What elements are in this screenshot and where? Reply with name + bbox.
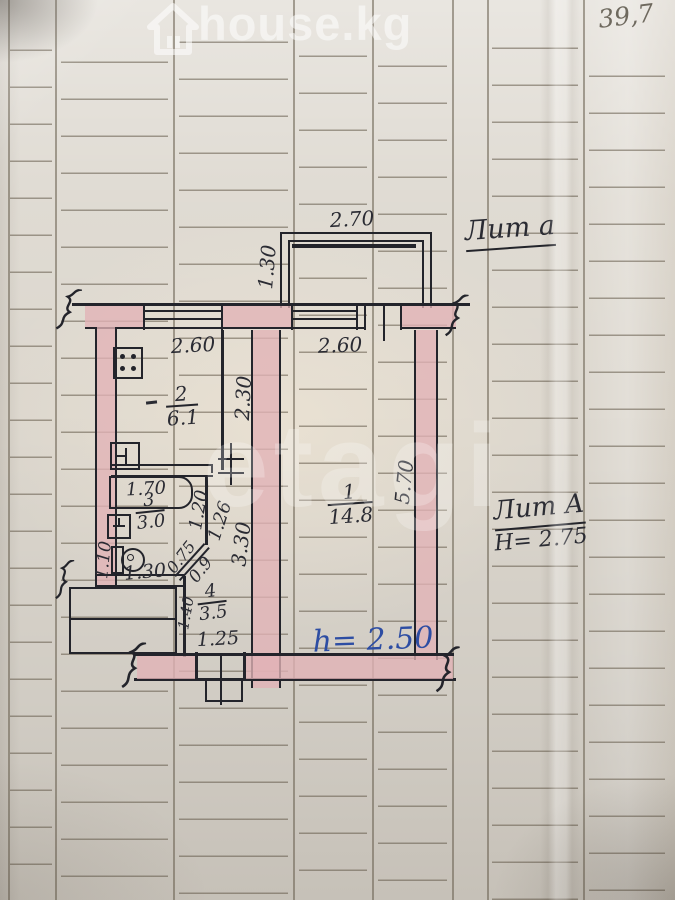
kitchen-door-jamb: [211, 464, 213, 473]
stove-burner: [120, 354, 125, 359]
window-pane-line: [143, 310, 223, 312]
wall-break-mark: [119, 641, 149, 690]
toilet-flush-dot: [127, 554, 134, 561]
door-jamb: [400, 303, 402, 330]
top-wall-segment: [85, 306, 143, 327]
vent-shaft-mark: [218, 472, 244, 474]
balcony-door-leaf: [383, 305, 385, 341]
bottom-wall-segment: [243, 656, 453, 679]
balcony-railing-line: [292, 244, 416, 248]
kitchen-label-dash: [146, 400, 157, 404]
window-jamb: [291, 303, 293, 330]
top-wall-segment: [221, 306, 293, 327]
porch-step-line: [71, 618, 175, 620]
wall-break-mark: [442, 293, 471, 339]
kitchen-sink-symbol: [110, 442, 140, 470]
right-wall: [414, 330, 438, 660]
window-jamb: [356, 303, 358, 330]
door-jamb: [364, 303, 366, 330]
wall-break-mark: [53, 286, 85, 333]
stove-burner: [120, 366, 125, 371]
stove-burner: [131, 366, 136, 371]
window-jamb: [143, 303, 145, 330]
basin-detail: [113, 525, 125, 527]
wall-break-mark: [52, 560, 78, 600]
entrance-door-jamb: [195, 652, 198, 681]
window-pane-line: [291, 310, 358, 312]
vent-shaft-mark: [218, 458, 244, 460]
kitchen-right-wall-line: [221, 330, 224, 470]
floor-plan-photo: 2.70 1.30 Лит а 2.60 2.30 26.1 2.60 114.…: [0, 0, 675, 900]
stove-burner: [131, 354, 136, 359]
floor-plan-drawing: 2.70 1.30 Лит а 2.60 2.30 26.1 2.60 114.…: [0, 0, 675, 900]
window-jamb: [221, 303, 223, 330]
balcony-inner-wall: [288, 240, 424, 308]
stove-symbol: [113, 347, 143, 379]
sink-detail: [117, 455, 126, 457]
washbasin-symbol: [107, 514, 131, 539]
entrance-door-jamb: [243, 652, 246, 681]
wall-break-mark: [433, 646, 463, 695]
entrance-step: [205, 681, 243, 702]
room-window: [291, 303, 358, 320]
vent-shaft-mark: [230, 443, 232, 485]
kitchen-window: [143, 303, 223, 320]
top-wall-inner-line-left: [85, 327, 366, 329]
